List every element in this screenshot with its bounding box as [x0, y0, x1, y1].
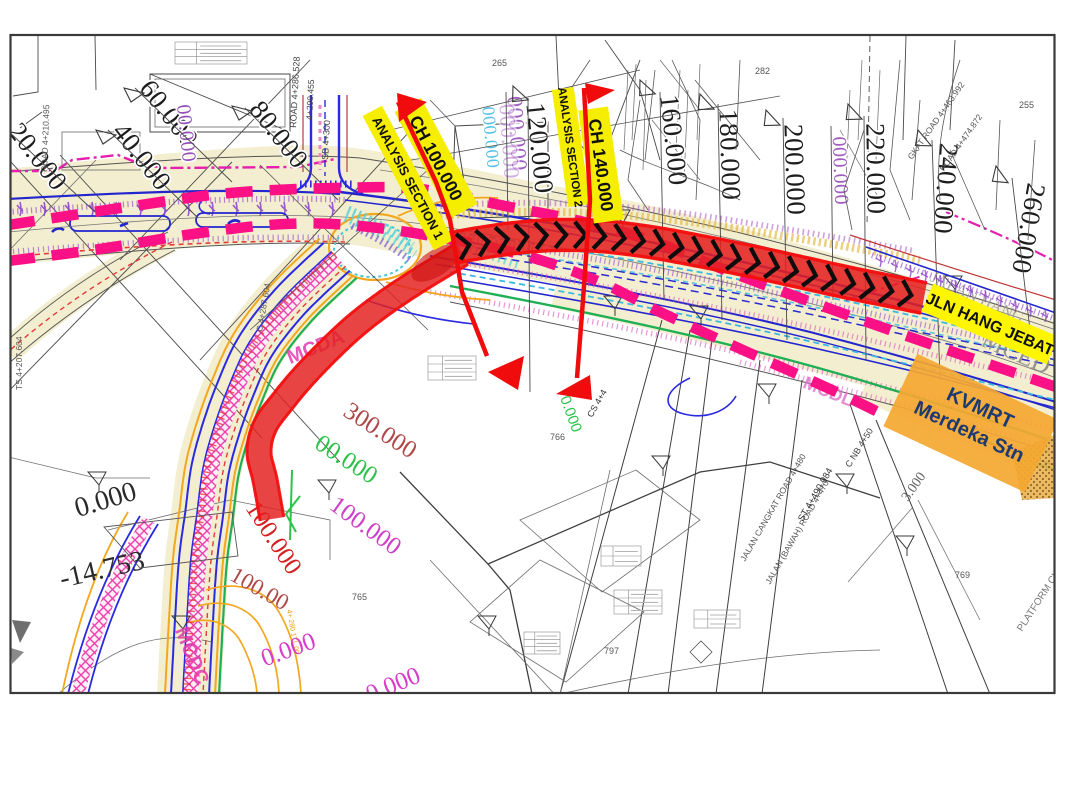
svg-text:SB 4+300: SB 4+300 [320, 120, 332, 160]
svg-text:255: 255 [1019, 100, 1034, 110]
svg-text:797: 797 [604, 646, 619, 656]
svg-text:765: 765 [352, 592, 367, 602]
svg-text:4+290.455: 4+290.455 [304, 79, 316, 120]
svg-text:769: 769 [955, 570, 970, 580]
svg-text:766: 766 [550, 432, 565, 442]
svg-text:TS 4+207.604: TS 4+207.604 [14, 336, 24, 390]
svg-text:282: 282 [755, 66, 770, 76]
svg-text:265: 265 [492, 58, 507, 68]
